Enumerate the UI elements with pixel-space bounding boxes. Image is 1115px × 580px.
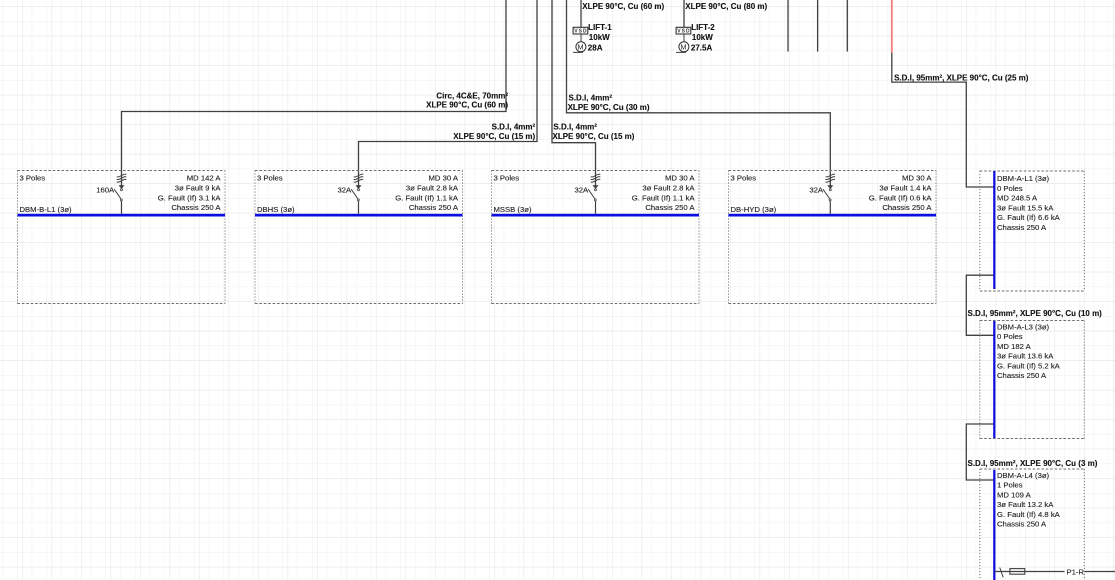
svg-text:0 Poles: 0 Poles <box>997 332 1023 341</box>
svg-text:0 Poles: 0 Poles <box>997 184 1023 193</box>
svg-text:32A: 32A <box>809 185 824 194</box>
svg-text:G. Fault (If) 3.1 kA: G. Fault (If) 3.1 kA <box>158 193 222 202</box>
svg-text:1 Poles: 1 Poles <box>997 481 1023 490</box>
svg-text:DBM-A-L3 (3ø): DBM-A-L3 (3ø) <box>997 322 1050 331</box>
svg-text:XLPE 90°C, Cu (60 m): XLPE 90°C, Cu (60 m) <box>582 2 664 11</box>
svg-text:32A: 32A <box>575 185 590 194</box>
svg-text:DBM-A-L1 (3ø): DBM-A-L1 (3ø) <box>997 174 1050 183</box>
svg-text:DBM-A-L4 (3ø): DBM-A-L4 (3ø) <box>997 471 1050 480</box>
svg-text:3 Poles: 3 Poles <box>257 174 283 183</box>
svg-text:MD 109 A: MD 109 A <box>997 490 1032 499</box>
svg-text:VSD: VSD <box>574 29 587 35</box>
svg-text:Chassis 250 A: Chassis 250 A <box>409 203 459 212</box>
svg-text:P1-R: P1-R <box>1067 567 1085 576</box>
svg-text:3ø Fault 2.8 kA: 3ø Fault 2.8 kA <box>406 184 459 193</box>
svg-text:3 Poles: 3 Poles <box>731 174 757 183</box>
svg-text:MD 30 A: MD 30 A <box>665 174 695 183</box>
svg-text:G. Fault (If) 0.6 kA: G. Fault (If) 0.6 kA <box>869 193 933 202</box>
svg-text:S.D.I, 4mm²: S.D.I, 4mm² <box>553 122 597 131</box>
svg-text:10kW: 10kW <box>692 33 713 42</box>
svg-text:DBHS (3ø): DBHS (3ø) <box>257 205 295 214</box>
svg-text:MSSB (3ø): MSSB (3ø) <box>494 205 532 214</box>
svg-text:3ø Fault 13.2 kA: 3ø Fault 13.2 kA <box>997 500 1054 509</box>
svg-text:LIFT-2: LIFT-2 <box>691 23 715 32</box>
svg-text:Chassis 250 A: Chassis 250 A <box>997 371 1047 380</box>
svg-text:S.D.I, 95mm², XLPE 90°C, Cu (3: S.D.I, 95mm², XLPE 90°C, Cu (3 m) <box>968 459 1098 468</box>
svg-text:G. Fault (If) 1.1 kA: G. Fault (If) 1.1 kA <box>395 193 459 202</box>
svg-text:28A: 28A <box>588 43 603 52</box>
svg-text:MD 30 A: MD 30 A <box>429 174 459 183</box>
svg-text:XLPE 90°C, Cu (80 m): XLPE 90°C, Cu (80 m) <box>685 2 767 11</box>
svg-text:S.D.I, 4mm²: S.D.I, 4mm² <box>492 122 536 131</box>
svg-text:G. Fault (If) 5.2 kA: G. Fault (If) 5.2 kA <box>997 361 1061 370</box>
svg-text:32A: 32A <box>338 185 353 194</box>
svg-text:Chassis 250 A: Chassis 250 A <box>997 520 1047 529</box>
svg-text:G. Fault (If) 1.1 kA: G. Fault (If) 1.1 kA <box>632 193 696 202</box>
svg-text:MD 248.5 A: MD 248.5 A <box>997 194 1038 203</box>
svg-text:MD 142 A: MD 142 A <box>187 174 222 183</box>
svg-text:XLPE 90°C, Cu (15 m): XLPE 90°C, Cu (15 m) <box>453 132 535 141</box>
svg-text:XLPE 90°C, Cu (30 m): XLPE 90°C, Cu (30 m) <box>568 103 650 112</box>
svg-text:S.D.I, 95mm², XLPE 90°C, Cu (1: S.D.I, 95mm², XLPE 90°C, Cu (10 m) <box>968 309 1103 318</box>
svg-text:Chassis 250 A: Chassis 250 A <box>882 203 932 212</box>
svg-text:Circ, 4C&E, 70mm²: Circ, 4C&E, 70mm² <box>436 91 508 100</box>
svg-text:Chassis 250 A: Chassis 250 A <box>171 203 221 212</box>
svg-text:XLPE 90°C, Cu (60 m): XLPE 90°C, Cu (60 m) <box>426 101 508 110</box>
svg-text:160A: 160A <box>96 185 115 194</box>
svg-text:S.D.I, 95mm², XLPE 90°C, Cu (2: S.D.I, 95mm², XLPE 90°C, Cu (25 m) <box>894 73 1029 82</box>
svg-text:MD 30 A: MD 30 A <box>902 174 932 183</box>
svg-text:3 Poles: 3 Poles <box>494 174 520 183</box>
svg-text:27.5A: 27.5A <box>691 43 713 52</box>
svg-text:M: M <box>578 43 584 52</box>
svg-text:Chassis 250 A: Chassis 250 A <box>997 223 1047 232</box>
svg-text:S.D.I, 4mm²: S.D.I, 4mm² <box>569 94 613 103</box>
svg-text:MD 182 A: MD 182 A <box>997 342 1032 351</box>
svg-text:LIFT-1: LIFT-1 <box>588 23 612 32</box>
svg-text:3ø Fault 15.5 kA: 3ø Fault 15.5 kA <box>997 203 1054 212</box>
svg-text:3ø Fault 9 kA: 3ø Fault 9 kA <box>175 184 222 193</box>
svg-text:M: M <box>681 43 687 52</box>
svg-text:3ø Fault 13.6 kA: 3ø Fault 13.6 kA <box>997 352 1054 361</box>
svg-text:3 Poles: 3 Poles <box>20 174 46 183</box>
svg-text:DBM-B-L1 (3ø): DBM-B-L1 (3ø) <box>20 205 73 214</box>
svg-text:Chassis 250 A: Chassis 250 A <box>645 203 695 212</box>
svg-text:G. Fault (If) 4.8 kA: G. Fault (If) 4.8 kA <box>997 510 1061 519</box>
svg-text:10kW: 10kW <box>589 33 610 42</box>
svg-text:DB-HYD (3ø): DB-HYD (3ø) <box>731 205 777 214</box>
svg-text:3ø Fault 2.8 kA: 3ø Fault 2.8 kA <box>642 184 695 193</box>
svg-text:3ø Fault 1.4 kA: 3ø Fault 1.4 kA <box>879 184 932 193</box>
svg-text:VSD: VSD <box>677 29 690 35</box>
svg-text:XLPE 90°C, Cu (15 m): XLPE 90°C, Cu (15 m) <box>553 132 635 141</box>
svg-text:G. Fault (If) 6.6 kA: G. Fault (If) 6.6 kA <box>997 213 1061 222</box>
